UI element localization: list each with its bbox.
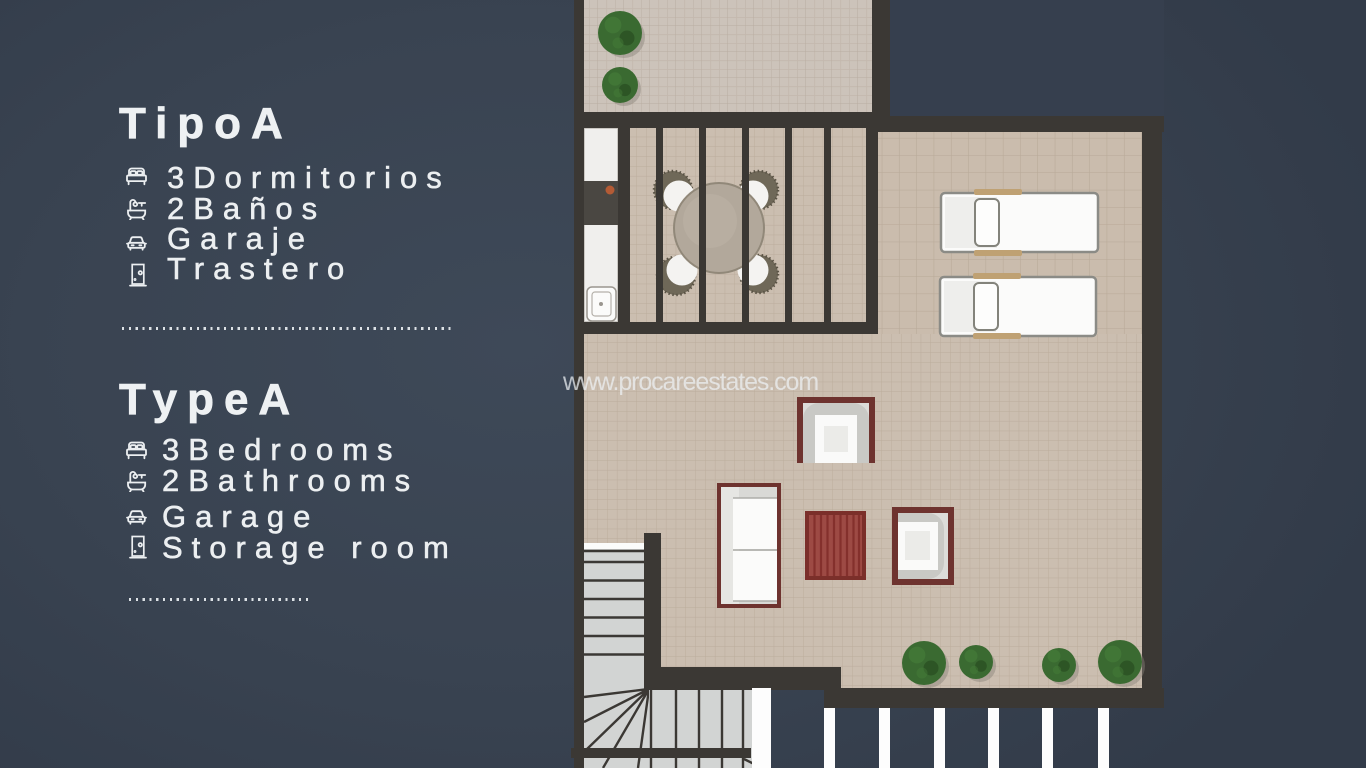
svg-text:www.procareestates.com: www.procareestates.com xyxy=(562,368,818,396)
